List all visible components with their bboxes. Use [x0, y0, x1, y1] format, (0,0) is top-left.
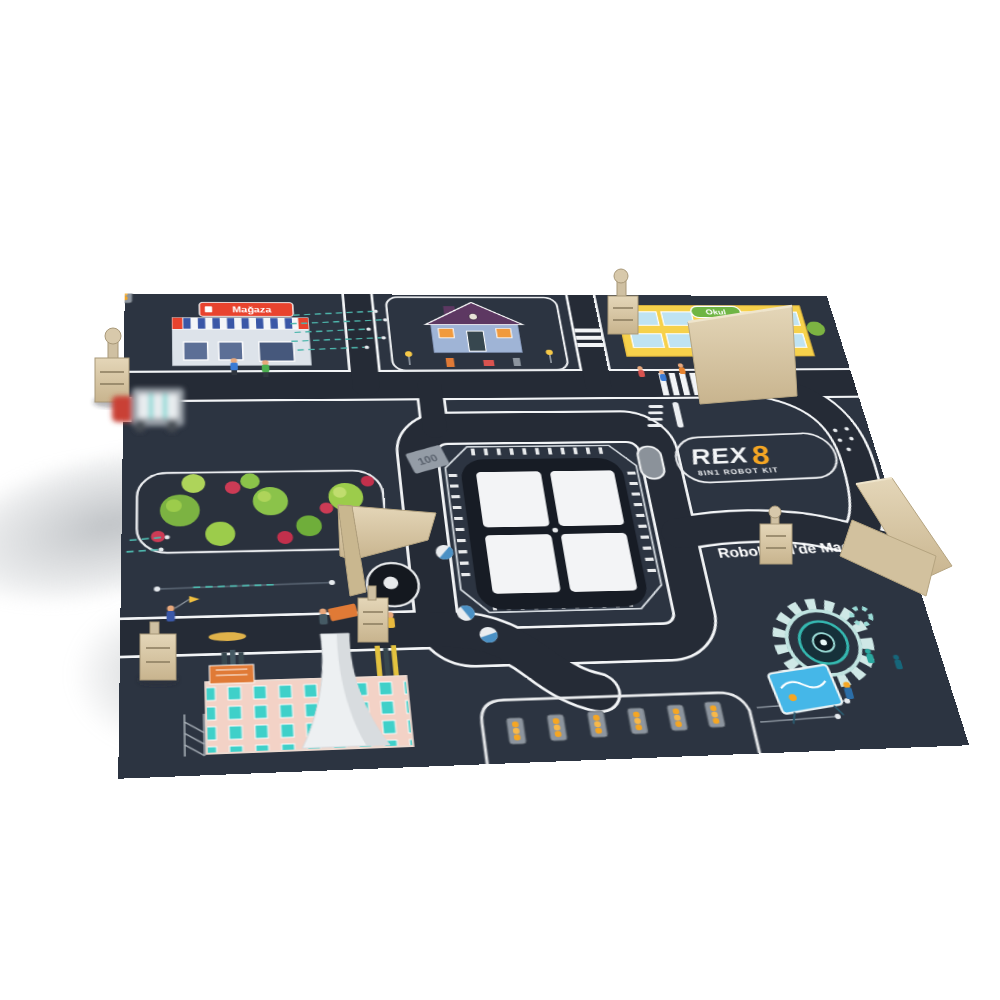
play-mat: Mağaza [118, 294, 969, 779]
store-sign-label: Mağaza [232, 305, 272, 314]
bag-icon [205, 306, 212, 312]
school-sign-label: Okul [705, 308, 727, 316]
store-sign: Mağaza [199, 302, 293, 316]
traffic-light [547, 714, 567, 740]
crosswalk-house [574, 329, 603, 347]
park [137, 470, 389, 553]
product-photo: Mağaza [0, 0, 1000, 1000]
school-sign: Okul [690, 306, 743, 318]
logo-text: REX [687, 442, 751, 469]
edge-sticker [123, 397, 132, 422]
traffic-light [506, 718, 526, 745]
mat-artwork: Mağaza [118, 294, 969, 779]
